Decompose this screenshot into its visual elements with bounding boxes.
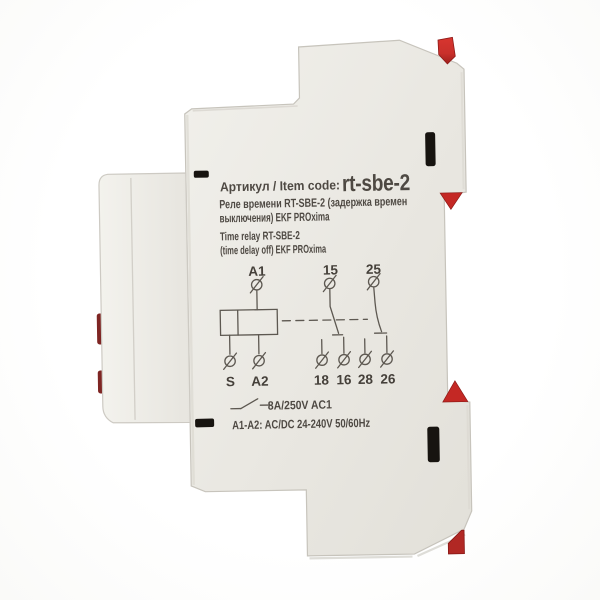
supply-rating-text: A1-A2: AC/DC 24-240V 50/60Hz <box>232 416 370 432</box>
artikul-label: Артикул / Item code: <box>220 177 340 194</box>
terminal-label-s: S <box>226 374 235 389</box>
terminal-label-a2: A2 <box>251 374 269 389</box>
item-code: rt-sbe-2 <box>342 169 410 196</box>
marker-slot-lower <box>195 419 214 428</box>
terminal-label-16: 16 <box>336 372 352 387</box>
front-panel <box>99 173 190 424</box>
vent-slot-top <box>425 132 436 166</box>
terminal-label-28: 28 <box>358 372 374 387</box>
product-photo: Артикул / Item code: rt-sbe-2 Реле време… <box>0 0 600 600</box>
relay-side-view: Артикул / Item code: rt-sbe-2 Реле време… <box>0 0 600 600</box>
device-body <box>184 39 473 558</box>
desc-en-line2: (time delay off) EKF PROxima <box>220 244 327 258</box>
contact-rating-text: 8A/250V AC1 <box>268 397 333 412</box>
desc-en-line1: Time relay RT-SBE-2 <box>220 230 300 243</box>
terminal-label-26: 26 <box>380 371 396 386</box>
vent-slot-bottom <box>427 427 440 463</box>
desc-ru-line2: выключения) EKF PROxima <box>219 209 329 225</box>
marker-slot-upper <box>194 171 209 178</box>
terminal-label-18: 18 <box>314 373 330 388</box>
